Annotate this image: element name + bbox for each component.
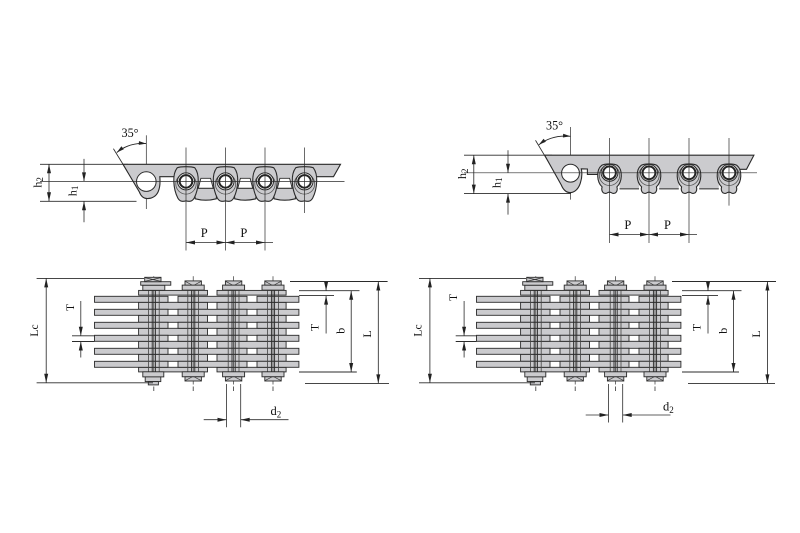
svg-text:b: b: [716, 328, 730, 334]
svg-text:L: L: [749, 330, 763, 337]
svg-text:P: P: [240, 226, 247, 240]
svg-text:P: P: [664, 218, 671, 232]
svg-text:35°: 35°: [546, 119, 563, 133]
svg-text:P: P: [201, 226, 208, 240]
svg-text:T: T: [65, 304, 77, 311]
svg-text:T: T: [692, 324, 704, 331]
svg-text:Lc: Lc: [413, 324, 425, 336]
svg-text:T: T: [448, 294, 460, 301]
svg-text:35°: 35°: [121, 126, 138, 140]
svg-text:T: T: [310, 324, 322, 331]
svg-text:Lc: Lc: [29, 324, 41, 336]
svg-text:P: P: [624, 218, 631, 232]
svg-text:L: L: [360, 330, 374, 337]
svg-text:b: b: [333, 328, 347, 334]
